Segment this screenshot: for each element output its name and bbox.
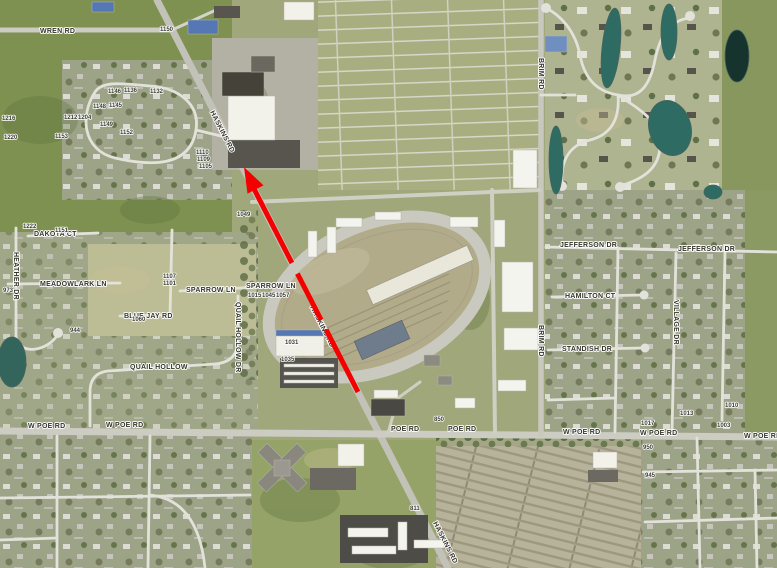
parcel-label: 811: [410, 506, 420, 512]
road-label: JEFFERSON DR: [560, 242, 617, 249]
pond: [0, 337, 26, 387]
parcel-label: 1045: [262, 293, 276, 299]
industrial-building-gray: [251, 56, 275, 72]
parcel-label: 1149: [100, 122, 114, 128]
parcel-label: 1101: [163, 281, 177, 287]
parcel-label: 950: [643, 445, 654, 451]
road-label: BRIM RD: [537, 58, 544, 90]
parcel-label: 973: [3, 288, 14, 294]
parcel-label: 1150: [160, 27, 174, 33]
wooded-strip-right: [745, 190, 777, 434]
road-label: STANDISH DR: [562, 346, 612, 353]
parcel-label: 850: [434, 417, 445, 423]
parking-lot: [228, 140, 300, 168]
building: [424, 355, 440, 366]
parcel-label: 1212: [64, 115, 78, 121]
parcel-label: 1222: [23, 224, 37, 230]
parcel-label: 1220: [4, 135, 18, 141]
road-label: QUAIL HOLLOW DR: [234, 302, 241, 373]
parcel-label: 1204: [78, 115, 92, 121]
parking-lot: [340, 515, 428, 563]
parcel-label: 1109: [197, 157, 211, 163]
road-label: SPARROW LN: [246, 283, 296, 290]
parcel-label: 945: [645, 473, 656, 479]
road-label: SPARROW LN: [186, 287, 236, 294]
parcel-label: 1148: [93, 104, 107, 110]
building: [438, 376, 452, 385]
blue-roof-strip: [276, 330, 324, 336]
car-rows: [284, 364, 334, 383]
neighborhood-bottomleft: [0, 432, 252, 568]
parcel-label: 1010: [725, 403, 739, 409]
parcel-label: 1146: [108, 89, 122, 95]
field-topright: [722, 0, 777, 190]
parcel-label: 1049: [237, 212, 251, 218]
road-label: QUAIL HOLLOW: [130, 364, 188, 371]
parking-lot: [310, 468, 356, 490]
tree-row: [436, 438, 641, 447]
parcel-label: 1110: [196, 150, 209, 156]
road-label: WREN RD: [40, 28, 75, 35]
parcel-label: 1015: [248, 293, 262, 299]
road-label: POE RD: [448, 426, 476, 433]
blue-roof-building: [92, 2, 114, 12]
pond-dark: [725, 30, 749, 82]
parcel-label: 1017: [641, 421, 655, 427]
building: [338, 444, 364, 466]
road-label: W POE RD: [563, 429, 600, 436]
parcel-label: 1151: [55, 228, 69, 234]
road-label: VILLAGE DR: [672, 300, 679, 345]
building: [593, 452, 617, 468]
road-label: BRIM RD: [537, 325, 544, 357]
aerial-map-viewport[interactable]: WREN RD HASKINS RD HASKINS RD HASKINS RD…: [0, 0, 777, 568]
parking-lot: [214, 6, 240, 18]
road-label: MEADOWLARK LN: [40, 281, 107, 288]
parcel-label: 1153: [55, 134, 69, 140]
neighborhood-rightmid: [545, 190, 777, 434]
parcel-label: 1145: [109, 103, 123, 109]
road-label: W POE RD: [744, 433, 777, 440]
parcel-label: 1057: [276, 293, 290, 299]
blue-roof-building: [545, 36, 567, 52]
road-label: JEFFERSON DR: [678, 246, 735, 253]
pond: [704, 185, 722, 199]
road-label: POE RD: [391, 426, 419, 433]
road-label: HEATHER DR: [12, 252, 19, 300]
aerial-map[interactable]: WREN RD HASKINS RD HASKINS RD HASKINS RD…: [0, 0, 777, 568]
pond: [549, 126, 563, 194]
parcel-label: 1060: [132, 317, 146, 323]
building: [374, 390, 398, 398]
road-label: HAMILTON CT: [565, 293, 616, 300]
building: [284, 2, 314, 20]
pond: [661, 4, 677, 60]
parcel-label: 1107: [163, 274, 177, 280]
road-label: W POE RD: [28, 423, 65, 430]
parcel-label: 1152: [120, 130, 134, 136]
building-dark: [371, 399, 405, 416]
parcel-label: 1035: [281, 357, 295, 363]
fairgrounds-parking-grid: [318, 0, 540, 190]
parcel-label: 1003: [717, 423, 731, 429]
parking-lot: [588, 470, 618, 482]
road-label: W POE RD: [640, 430, 677, 437]
industrial-building-dark: [222, 72, 264, 96]
blue-roof-building: [188, 20, 218, 34]
industrial-building: [228, 96, 275, 140]
parcel-label: 1105: [199, 164, 213, 170]
parcel-label: 1132: [150, 89, 164, 95]
parcel-label: 1216: [2, 116, 16, 122]
parcel-label: 1013: [680, 411, 694, 417]
parcel-label: 1031: [285, 340, 299, 346]
parcel-label: 1136: [124, 88, 138, 94]
road-label: W POE RD: [106, 422, 143, 429]
parcel-label: 944: [70, 328, 81, 334]
